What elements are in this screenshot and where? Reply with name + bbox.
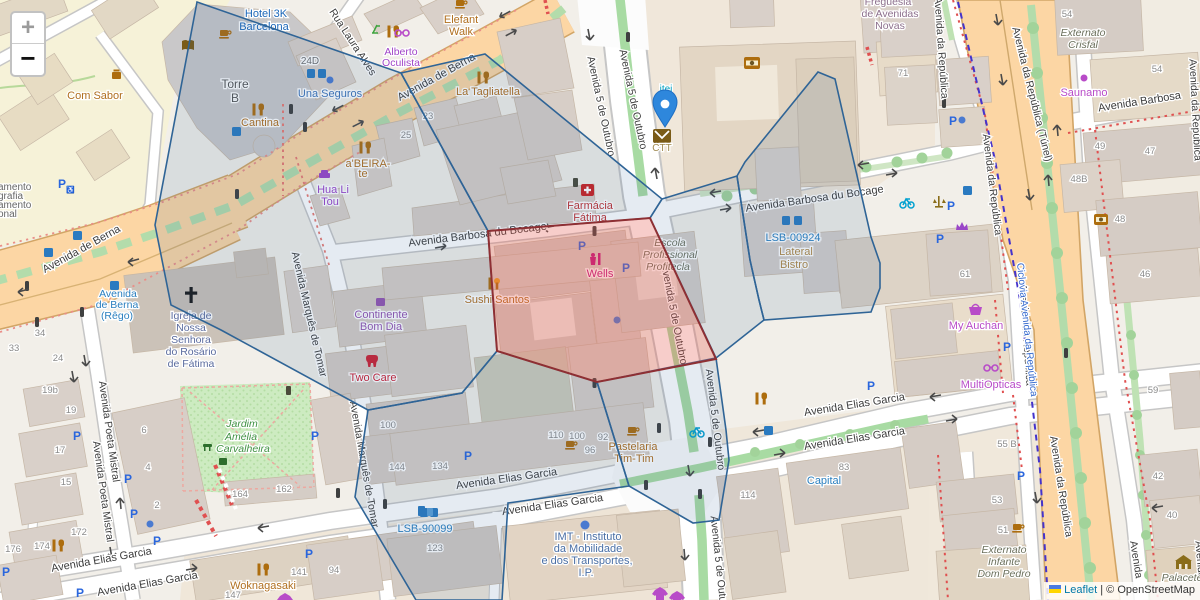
svg-text:15: 15 <box>61 477 72 488</box>
svg-text:164: 164 <box>232 489 248 500</box>
svg-text:P: P <box>311 429 319 443</box>
svg-text:42: 42 <box>1153 471 1164 482</box>
svg-text:Com Sabor: Com Sabor <box>67 90 123 102</box>
svg-text:Freguesia: Freguesia <box>865 0 912 8</box>
svg-text:174: 174 <box>34 541 50 552</box>
svg-text:P: P <box>73 429 81 443</box>
svg-text:P: P <box>76 586 84 600</box>
svg-text:Infante: Infante <box>988 556 1020 568</box>
svg-text:24: 24 <box>53 353 64 364</box>
svg-text:onal: onal <box>0 209 17 220</box>
svg-text:P: P <box>867 379 875 393</box>
svg-text:Nossa: Nossa <box>176 322 206 334</box>
svg-text:da Mobilidade: da Mobilidade <box>554 543 623 555</box>
svg-text:94: 94 <box>329 565 340 576</box>
svg-text:P: P <box>58 177 66 191</box>
svg-text:de Avenidas: de Avenidas <box>861 8 918 20</box>
svg-text:P: P <box>153 534 161 548</box>
svg-text:176: 176 <box>5 544 21 555</box>
svg-text:54: 54 <box>1152 64 1163 75</box>
svg-text:P: P <box>1003 340 1011 354</box>
svg-text:Saunamo: Saunamo <box>1060 87 1107 99</box>
svg-text:61: 61 <box>960 269 971 280</box>
svg-text:172: 172 <box>71 527 87 538</box>
svg-text:Externato: Externato <box>1061 27 1106 39</box>
svg-text:P: P <box>305 547 313 561</box>
svg-text:53: 53 <box>992 495 1003 506</box>
svg-text:P: P <box>130 507 138 521</box>
svg-text:114: 114 <box>740 490 755 501</box>
svg-text:P: P <box>936 232 944 246</box>
svg-text:Oculista: Oculista <box>382 57 420 69</box>
svg-text:Amélia: Amélia <box>224 431 257 443</box>
svg-text:55 B: 55 B <box>997 439 1017 450</box>
svg-text:e dos Transportes,: e dos Transportes, <box>541 555 632 567</box>
svg-text:P: P <box>947 199 955 213</box>
svg-text:Elefant: Elefant <box>444 14 478 26</box>
svg-text:59: 59 <box>1148 385 1159 396</box>
svg-text:IMT · Instituto: IMT · Instituto <box>554 531 621 543</box>
svg-text:19b: 19b <box>42 385 58 396</box>
svg-text:P: P <box>1017 469 1025 483</box>
svg-text:P: P <box>124 472 132 486</box>
svg-text:do Rosário: do Rosário <box>166 346 217 358</box>
svg-text:40: 40 <box>1167 510 1178 521</box>
svg-text:Hotel 3K: Hotel 3K <box>245 8 288 20</box>
svg-text:Carvalheira: Carvalheira <box>216 443 270 455</box>
svg-text:141: 141 <box>291 567 307 578</box>
svg-text:Crisfal: Crisfal <box>1068 39 1098 51</box>
svg-text:(Rêgo): (Rêgo) <box>101 310 133 322</box>
svg-text:34: 34 <box>35 328 46 339</box>
svg-text:de Fátima: de Fátima <box>168 358 215 370</box>
svg-text:MultiOpticas: MultiOpticas <box>961 379 1022 391</box>
svg-text:Senhora: Senhora <box>171 334 211 346</box>
svg-text:4: 4 <box>145 462 150 473</box>
svg-text:Jardim: Jardim <box>225 418 258 430</box>
svg-text:2: 2 <box>154 500 159 511</box>
svg-text:47: 47 <box>1145 146 1156 157</box>
svg-text:♿: ♿ <box>66 185 75 194</box>
svg-text:48: 48 <box>1115 214 1126 225</box>
svg-text:P: P <box>949 114 957 128</box>
svg-text:P: P <box>2 565 10 579</box>
svg-text:Capital: Capital <box>807 475 841 487</box>
svg-text:Dom Pedro: Dom Pedro <box>977 568 1030 580</box>
svg-text:Walk: Walk <box>449 26 474 38</box>
svg-text:My Auchan: My Auchan <box>949 320 1003 332</box>
svg-text:71: 71 <box>898 68 909 79</box>
svg-text:46: 46 <box>1140 269 1151 280</box>
svg-text:33: 33 <box>9 343 20 354</box>
svg-text:Externato: Externato <box>982 544 1027 556</box>
svg-text:17: 17 <box>55 445 66 456</box>
svg-text:147: 147 <box>225 590 241 600</box>
svg-text:162: 162 <box>276 484 292 495</box>
svg-text:49: 49 <box>1095 141 1106 152</box>
svg-text:19: 19 <box>66 405 77 416</box>
svg-text:83: 83 <box>839 462 850 473</box>
svg-text:51: 51 <box>998 525 1009 536</box>
svg-text:6: 6 <box>141 425 146 436</box>
svg-text:54: 54 <box>1062 9 1073 20</box>
svg-text:48B: 48B <box>1071 174 1088 185</box>
svg-text:Novas: Novas <box>875 20 905 32</box>
svg-text:I.P.: I.P. <box>578 567 593 579</box>
svg-text:CTT: CTT <box>652 143 671 154</box>
